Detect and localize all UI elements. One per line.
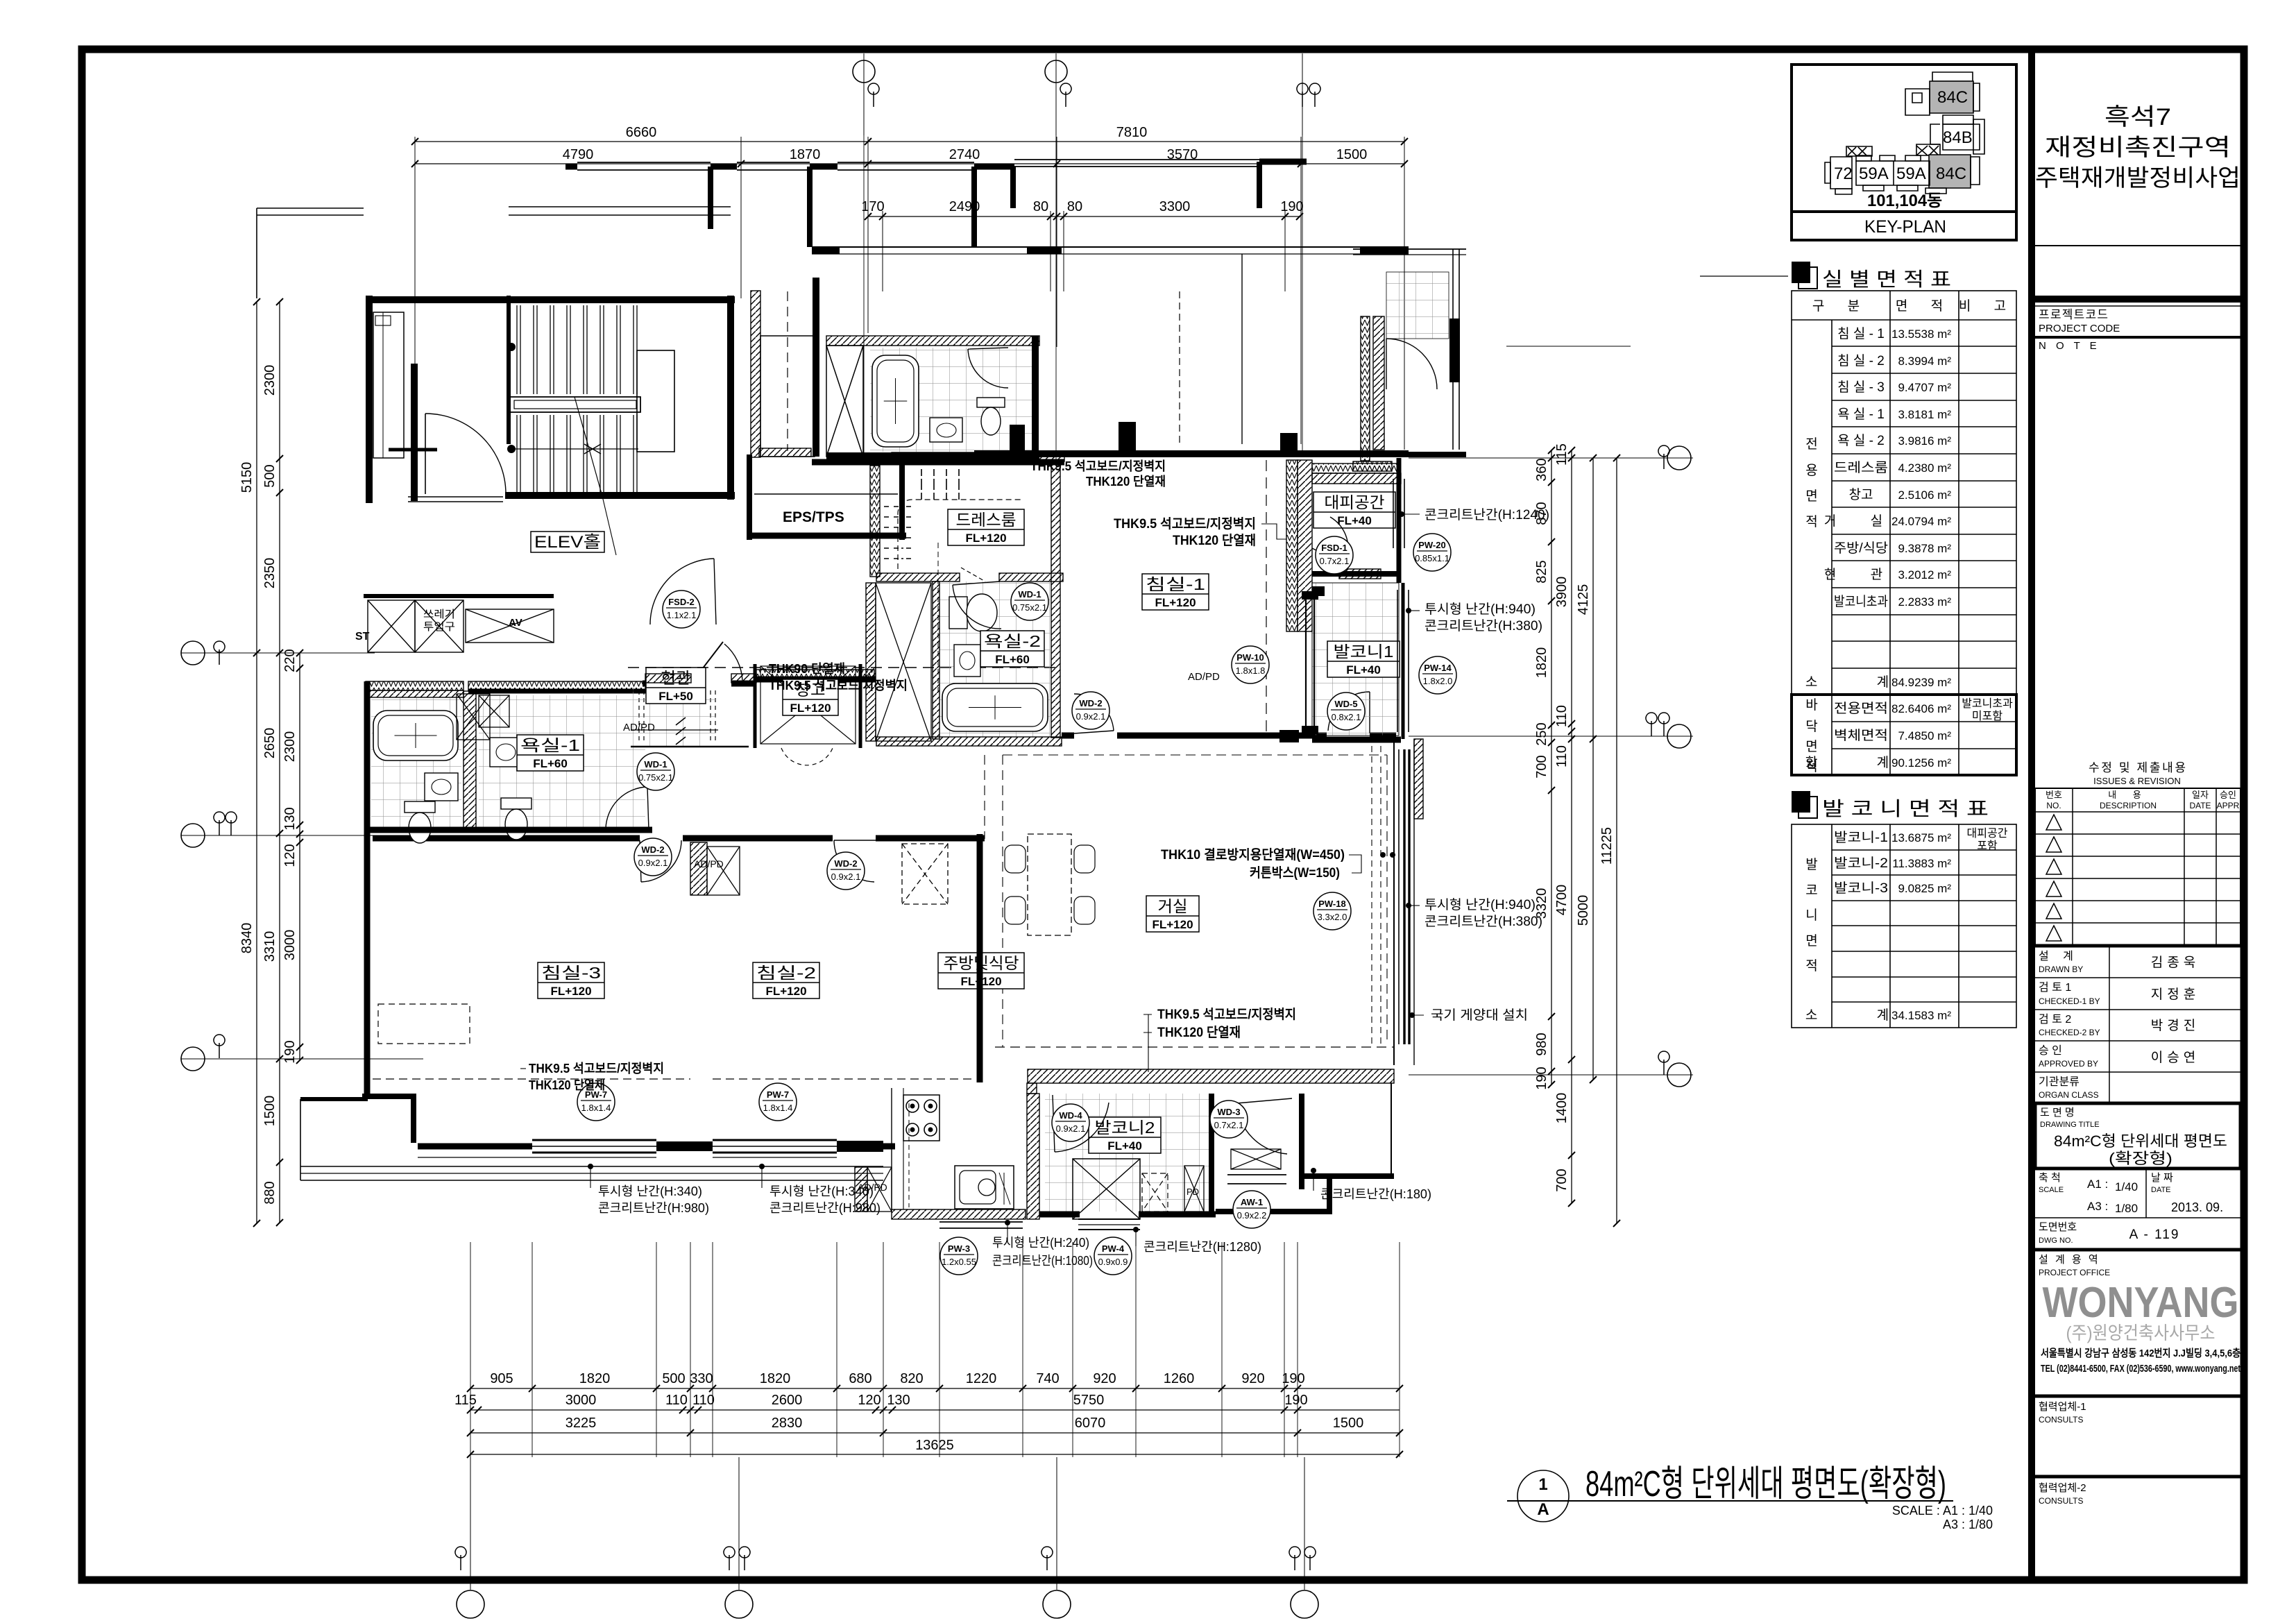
svg-text:협력업체-2: 협력업체-2	[2039, 1482, 2086, 1494]
svg-text:9.4707 m²: 9.4707 m²	[1898, 381, 1951, 394]
svg-text:PW-20: PW-20	[1418, 540, 1445, 550]
svg-text:DRAWING TITLE: DRAWING TITLE	[2040, 1121, 2100, 1129]
svg-text:13.6875 m²: 13.6875 m²	[1891, 831, 1951, 844]
svg-text:AD/PD: AD/PD	[1188, 671, 1220, 683]
svg-text:3310: 3310	[262, 931, 278, 962]
svg-text:콘크리트난간(H:1240): 콘크리트난간(H:1240)	[1425, 507, 1549, 522]
svg-text:검 토 1: 검 토 1	[2039, 981, 2071, 994]
svg-text:3225: 3225	[566, 1416, 597, 1431]
svg-text:FL+120: FL+120	[550, 985, 591, 998]
svg-text:0.9x2.2: 0.9x2.2	[1237, 1210, 1267, 1221]
svg-text:FL+50: FL+50	[658, 690, 693, 703]
svg-text:발: 발	[1805, 857, 1817, 872]
svg-text:115: 115	[1554, 443, 1570, 466]
svg-text:905: 905	[490, 1371, 513, 1386]
svg-text:SCALE : A1 : 1/40: SCALE : A1 : 1/40	[1892, 1504, 1993, 1518]
svg-text:360: 360	[1534, 458, 1549, 481]
svg-text:1500: 1500	[262, 1096, 278, 1127]
svg-text:24.0794 m²: 24.0794 m²	[1891, 515, 1951, 528]
svg-text:4.2380 m²: 4.2380 m²	[1898, 461, 1951, 475]
svg-text:콘크리트난간(H:980): 콘크리트난간(H:980)	[769, 1201, 881, 1215]
svg-text:투입구: 투입구	[423, 621, 455, 633]
svg-text:A - 119: A - 119	[2129, 1227, 2180, 1242]
svg-text:PROJECT OFFICE: PROJECT OFFICE	[2039, 1268, 2110, 1277]
svg-text:8.3994 m²: 8.3994 m²	[1898, 355, 1951, 368]
svg-text:WD-2: WD-2	[834, 858, 857, 869]
svg-text:2.2833 m²: 2.2833 m²	[1898, 595, 1951, 609]
svg-text:DESCRIPTION: DESCRIPTION	[2100, 801, 2157, 810]
svg-text:59A: 59A	[1896, 164, 1926, 183]
svg-text:FL+60: FL+60	[533, 757, 568, 770]
svg-text:120: 120	[858, 1393, 881, 1408]
svg-text:THK9.5 석고보드/지정벽지: THK9.5 석고보드/지정벽지	[769, 679, 908, 692]
svg-text:3900: 3900	[1554, 577, 1570, 608]
svg-text:7810: 7810	[1116, 125, 1148, 140]
svg-text:검 토 2: 검 토 2	[2039, 1013, 2071, 1026]
svg-text:WONYANG: WONYANG	[2043, 1279, 2239, 1327]
svg-text:CHECKED-2 BY: CHECKED-2 BY	[2039, 1028, 2100, 1037]
svg-text:9.3878 m²: 9.3878 m²	[1898, 542, 1951, 555]
svg-text:500: 500	[662, 1371, 685, 1386]
svg-text:AV: AV	[509, 617, 522, 629]
svg-text:PD: PD	[1187, 1187, 1199, 1197]
svg-text:2350: 2350	[262, 558, 278, 589]
svg-text:WD-4: WD-4	[1059, 1110, 1082, 1121]
svg-text:실 별 면 적 표: 실 별 면 적 표	[1822, 269, 1951, 290]
svg-text:0.85x1.1: 0.85x1.1	[1415, 553, 1449, 563]
svg-text:승인: 승인	[2220, 790, 2236, 800]
svg-text:번호: 번호	[2046, 790, 2062, 800]
svg-text:AD/PD: AD/PD	[623, 722, 655, 733]
svg-text:발 코 니 면 적 표: 발 코 니 면 적 표	[1822, 798, 1989, 819]
svg-text:FL+120: FL+120	[1152, 918, 1193, 931]
svg-text:72: 72	[1834, 164, 1853, 183]
svg-text:전: 전	[1805, 436, 1817, 452]
svg-text:2600: 2600	[772, 1393, 803, 1408]
svg-text:0.7x2.1: 0.7x2.1	[1214, 1120, 1244, 1130]
svg-text:80: 80	[1033, 199, 1048, 214]
svg-text:A3 :: A3 :	[2087, 1200, 2108, 1213]
svg-text:PW-3: PW-3	[948, 1243, 970, 1254]
svg-text:전용면적: 전용면적	[1834, 701, 1888, 716]
svg-text:330: 330	[690, 1371, 713, 1386]
svg-text:협력업체-1: 협력업체-1	[2039, 1401, 2086, 1413]
svg-text:PW-14: PW-14	[1424, 663, 1452, 673]
svg-text:현 관: 현 관	[1824, 567, 1898, 582]
svg-text:CONSULTS: CONSULTS	[2039, 1415, 2083, 1425]
svg-text:면: 면	[1805, 933, 1817, 949]
svg-text:1220: 1220	[966, 1371, 997, 1386]
svg-text:84C: 84C	[1936, 164, 1966, 183]
svg-text:84m²C형 단위세대 평면도: 84m²C형 단위세대 평면도	[2054, 1132, 2227, 1150]
svg-text:1.8x1.4: 1.8x1.4	[763, 1103, 793, 1113]
svg-text:TEL (02)8441-6500, FAX (02)536: TEL (02)8441-6500, FAX (02)536-6590, www…	[2041, 1363, 2240, 1375]
svg-text:코: 코	[1805, 883, 1817, 898]
svg-text:190: 190	[1284, 1393, 1307, 1408]
svg-text:3000: 3000	[282, 930, 298, 961]
svg-text:재정비촉진구역: 재정비촉진구역	[2045, 135, 2231, 161]
svg-text:2830: 2830	[772, 1416, 803, 1431]
svg-text:980: 980	[1534, 1033, 1549, 1055]
svg-text:0.75x2.1: 0.75x2.1	[1012, 602, 1047, 613]
svg-text:쓰레기: 쓰레기	[423, 609, 455, 620]
svg-text:34.1583 m²: 34.1583 m²	[1891, 1009, 1951, 1022]
svg-text:욕 실 - 2: 욕 실 - 2	[1837, 433, 1885, 448]
svg-text:1.8x1.8: 1.8x1.8	[1236, 665, 1266, 676]
svg-text:130: 130	[887, 1393, 910, 1408]
svg-text:190: 190	[282, 1040, 298, 1063]
svg-text:발코니초과: 발코니초과	[1834, 594, 1888, 609]
svg-text:CONSULTS: CONSULTS	[2039, 1496, 2083, 1506]
svg-text:거실: 거실	[1158, 897, 1188, 915]
svg-text:WD-2: WD-2	[641, 844, 664, 855]
svg-text:1: 1	[1538, 1475, 1547, 1494]
svg-text:흑석7: 흑석7	[2104, 104, 2171, 130]
svg-text:수정 및 제출내용: 수정 및 제출내용	[2089, 761, 2186, 774]
svg-text:미포함: 미포함	[1972, 710, 2002, 722]
svg-text:820: 820	[900, 1371, 923, 1386]
svg-text:기관분류: 기관분류	[2039, 1076, 2080, 1088]
svg-text:WD-1: WD-1	[644, 759, 667, 770]
svg-text:110: 110	[1554, 745, 1570, 767]
svg-text:용: 용	[1805, 464, 1817, 478]
svg-text:발코니2: 발코니2	[1095, 1119, 1155, 1137]
svg-text:1400: 1400	[1554, 1093, 1570, 1124]
svg-text:7.4850 m²: 7.4850 m²	[1898, 729, 1951, 742]
svg-text:FL+40: FL+40	[1337, 514, 1372, 527]
svg-text:11225: 11225	[1599, 827, 1615, 865]
svg-text:A: A	[1537, 1500, 1549, 1519]
svg-text:(주)원양건축사사무소: (주)원양건축사사무소	[2066, 1323, 2216, 1343]
svg-text:1500: 1500	[1333, 1416, 1364, 1431]
svg-text:5750: 5750	[1073, 1393, 1105, 1408]
svg-text:FL+120: FL+120	[1155, 596, 1196, 609]
svg-text:AW-1: AW-1	[1241, 1197, 1263, 1207]
svg-text:욕 실 - 1: 욕 실 - 1	[1837, 407, 1885, 422]
svg-text:PW-10: PW-10	[1236, 652, 1264, 663]
svg-text:도면번호: 도면번호	[2039, 1221, 2077, 1233]
svg-text:82.6406 m²: 82.6406 m²	[1891, 702, 1951, 715]
svg-text:3.3x2.0: 3.3x2.0	[1318, 912, 1347, 922]
svg-text:DATE: DATE	[2151, 1186, 2171, 1194]
svg-text:6660: 6660	[626, 125, 657, 140]
svg-text:8340: 8340	[239, 923, 255, 954]
svg-text:6070: 6070	[1075, 1416, 1106, 1431]
svg-text:CHECKED-1 BY: CHECKED-1 BY	[2039, 996, 2100, 1006]
svg-text:0.9x2.1: 0.9x2.1	[1076, 711, 1106, 722]
svg-text:DRAWN BY: DRAWN BY	[2039, 965, 2083, 974]
svg-text:일자: 일자	[2192, 790, 2209, 800]
svg-text:1260: 1260	[1164, 1371, 1195, 1386]
svg-text:700: 700	[1534, 755, 1549, 778]
svg-text:포함: 포함	[1977, 840, 1998, 852]
svg-text:서울특별시 강남구 삼성동 142번지 J.J빌딩 3,4: 서울특별시 강남구 삼성동 142번지 J.J빌딩 3,4,5,6층	[2041, 1347, 2240, 1359]
svg-text:벽체면적: 벽체면적	[1834, 728, 1888, 743]
svg-text:FL+120: FL+120	[790, 702, 831, 715]
svg-text:발코니-1: 발코니-1	[1834, 830, 1888, 845]
svg-text:발코니-3: 발코니-3	[1834, 881, 1888, 896]
svg-text:1/40: 1/40	[2115, 1180, 2138, 1193]
svg-text:설 계: 설 계	[2039, 950, 2079, 962]
svg-text:ELEV홀: ELEV홀	[534, 533, 601, 552]
svg-text:680: 680	[849, 1371, 871, 1386]
svg-text:13625: 13625	[915, 1438, 954, 1453]
svg-text:축 척: 축 척	[2039, 1172, 2061, 1184]
svg-text:도 면 명: 도 면 명	[2040, 1107, 2075, 1119]
svg-text:비 고: 비 고	[1959, 298, 2016, 314]
svg-text:THK10 결로방지용단열재(W=450): THK10 결로방지용단열재(W=450)	[1161, 847, 1345, 863]
svg-text:1820: 1820	[579, 1371, 611, 1386]
svg-text:침 실 - 3: 침 실 - 3	[1837, 380, 1885, 395]
svg-text:110: 110	[665, 1393, 688, 1408]
svg-text:110: 110	[692, 1393, 715, 1408]
svg-text:1820: 1820	[760, 1371, 791, 1386]
svg-text:110: 110	[1554, 705, 1570, 727]
svg-text:THK9.5 석고보드/지정벽지: THK9.5 석고보드/지정벽지	[529, 1062, 664, 1076]
svg-text:0.7x2.1: 0.7x2.1	[1320, 556, 1350, 566]
svg-text:190: 190	[1534, 1067, 1549, 1089]
svg-text:1820: 1820	[1534, 647, 1549, 679]
svg-text:김종욱: 김종욱	[2151, 955, 2200, 970]
svg-text:2740: 2740	[949, 147, 980, 162]
svg-text:FL+40: FL+40	[1107, 1139, 1142, 1153]
svg-text:콘크리트난간(H:1080): 콘크리트난간(H:1080)	[992, 1254, 1093, 1268]
svg-text:발코니1: 발코니1	[1334, 643, 1394, 661]
svg-text:닥: 닥	[1805, 719, 1817, 734]
svg-text:0.8x2.1: 0.8x2.1	[1332, 712, 1361, 722]
svg-text:3.2012 m²: 3.2012 m²	[1898, 568, 1951, 581]
svg-text:190: 190	[1280, 199, 1303, 214]
svg-text:3.8181 m²: 3.8181 m²	[1898, 408, 1951, 421]
svg-text:FSD-2: FSD-2	[668, 597, 695, 607]
svg-text:84m²C형 단위세대 평면도(확장형): 84m²C형 단위세대 평면도(확장형)	[1585, 1464, 1946, 1504]
svg-text:84.9239 m²: 84.9239 m²	[1891, 676, 1951, 689]
svg-text:NO.: NO.	[2046, 801, 2061, 810]
svg-text:투시형 난간(H:940): 투시형 난간(H:940)	[1425, 602, 1536, 617]
svg-text:3300: 3300	[1159, 199, 1191, 214]
svg-text:1870: 1870	[790, 147, 821, 162]
svg-text:220: 220	[282, 649, 298, 672]
svg-text:발코니초과: 발코니초과	[1962, 697, 2013, 710]
svg-text:국기 게양대 설치: 국기 게양대 설치	[1431, 1008, 1528, 1023]
svg-text:거 실: 거 실	[1824, 513, 1898, 529]
svg-text:920: 920	[1093, 1371, 1116, 1386]
svg-text:59A: 59A	[1859, 164, 1889, 183]
svg-text:FL+40: FL+40	[1346, 663, 1381, 677]
svg-text:0.9x2.1: 0.9x2.1	[1056, 1123, 1086, 1134]
svg-text:2013. 09.: 2013. 09.	[2171, 1200, 2223, 1214]
svg-text:AD/PD: AD/PD	[694, 858, 724, 869]
svg-text:주택재개발정비사업: 주택재개발정비사업	[2035, 165, 2240, 192]
svg-text:WD-5: WD-5	[1334, 699, 1357, 709]
svg-text:승 인: 승 인	[2039, 1044, 2062, 1057]
svg-text:500: 500	[262, 464, 278, 487]
svg-text:THK9.5 석고보드/지정벽지: THK9.5 석고보드/지정벽지	[1114, 516, 1256, 532]
svg-text:84C: 84C	[1937, 88, 1968, 107]
svg-text:1.8x2.0: 1.8x2.0	[1423, 676, 1453, 686]
svg-text:740: 740	[1036, 1371, 1059, 1386]
svg-text:EPS/TPS: EPS/TPS	[783, 509, 844, 525]
svg-text:80: 80	[1067, 199, 1082, 214]
svg-text:0.75x2.1: 0.75x2.1	[638, 772, 673, 783]
svg-text:A3 : 1/80: A3 : 1/80	[1943, 1518, 1993, 1531]
svg-text:침실-3: 침실-3	[541, 964, 601, 982]
svg-text:5000: 5000	[1576, 895, 1591, 926]
svg-text:2650: 2650	[262, 728, 278, 759]
svg-text:1500: 1500	[1336, 147, 1368, 162]
svg-text:250: 250	[1534, 722, 1549, 745]
svg-text:투시형 난간(H:340): 투시형 난간(H:340)	[769, 1184, 874, 1198]
svg-text:DWG NO.: DWG NO.	[2039, 1237, 2073, 1245]
svg-text:THK120 단열재: THK120 단열재	[529, 1078, 605, 1092]
svg-text:920: 920	[1241, 1371, 1264, 1386]
svg-text:침실-1: 침실-1	[1146, 575, 1205, 593]
svg-text:9.0825 m²: 9.0825 m²	[1898, 882, 1951, 895]
svg-text:THK120 단열재: THK120 단열재	[1086, 475, 1166, 488]
svg-text:주방/식당: 주방/식당	[1834, 541, 1888, 556]
svg-text:4125: 4125	[1576, 584, 1591, 615]
svg-text:적: 적	[1805, 514, 1817, 529]
svg-text:면 적: 면 적	[1896, 298, 1953, 314]
svg-text:DATE: DATE	[2189, 801, 2211, 810]
svg-text:5150: 5150	[239, 462, 255, 493]
svg-text:설 계 용 역: 설 계 용 역	[2039, 1254, 2100, 1266]
svg-text:욕실-2: 욕실-2	[984, 632, 1041, 650]
svg-text:투시형 난간(H:240): 투시형 난간(H:240)	[992, 1236, 1089, 1250]
svg-text:침실-2: 침실-2	[756, 964, 816, 982]
svg-text:ST: ST	[355, 631, 370, 643]
svg-text:FL+120: FL+120	[765, 985, 806, 998]
svg-text:날 짜: 날 짜	[2151, 1172, 2173, 1184]
svg-text:프로젝트코드: 프로젝트코드	[2039, 308, 2108, 321]
svg-text:0.9x0.9: 0.9x0.9	[1098, 1257, 1128, 1267]
svg-text:11.3883 m²: 11.3883 m²	[1892, 857, 1951, 870]
svg-text:3000: 3000	[566, 1393, 597, 1408]
svg-text:콘크리트난간(H:980): 콘크리트난간(H:980)	[598, 1201, 709, 1215]
svg-text:2300: 2300	[262, 365, 278, 396]
svg-text:700: 700	[1554, 1169, 1570, 1191]
svg-text:FL+120: FL+120	[965, 532, 1006, 545]
svg-text:구 분: 구 분	[1812, 299, 1869, 314]
svg-text:115: 115	[454, 1393, 477, 1408]
svg-text:ISSUES & REVISION: ISSUES & REVISION	[2093, 776, 2181, 786]
svg-text:WD-1: WD-1	[1018, 589, 1041, 600]
svg-text:THK120 단열재: THK120 단열재	[1173, 533, 1256, 548]
svg-text:130: 130	[282, 807, 298, 830]
svg-text:3.9816 m²: 3.9816 m²	[1898, 434, 1951, 448]
svg-text:커튼박스(W=150): 커튼박스(W=150)	[1250, 865, 1340, 881]
svg-text:4700: 4700	[1554, 885, 1570, 916]
svg-text:A1 :: A1 :	[2087, 1178, 2108, 1191]
svg-text:니: 니	[1805, 908, 1817, 923]
svg-text:지정훈: 지정훈	[2151, 987, 2200, 1002]
svg-text:2300: 2300	[282, 731, 298, 763]
svg-text:콘크리트난간(H:1280): 콘크리트난간(H:1280)	[1143, 1240, 1261, 1254]
svg-text:120: 120	[282, 844, 298, 867]
svg-text:투시형 난간(H:940): 투시형 난간(H:940)	[1425, 897, 1536, 912]
svg-text:대피공간: 대피공간	[1967, 827, 2008, 840]
svg-text:SCALE: SCALE	[2039, 1186, 2064, 1194]
svg-text:13.5538 m²: 13.5538 m²	[1891, 328, 1951, 341]
svg-text:이승연: 이승연	[2151, 1050, 2200, 1065]
svg-text:THK9.5 석고보드/지정벽지: THK9.5 석고보드/지정벽지	[1157, 1007, 1296, 1022]
svg-text:FL+60: FL+60	[995, 653, 1030, 666]
svg-text:PROJECT CODE: PROJECT CODE	[2039, 323, 2120, 334]
svg-text:170: 170	[861, 199, 884, 214]
svg-text:콘크리트난간(H:380): 콘크리트난간(H:380)	[1425, 914, 1542, 929]
svg-text:THK120 단열재: THK120 단열재	[1157, 1025, 1241, 1040]
svg-text:0.9x2.1: 0.9x2.1	[831, 872, 861, 882]
svg-text:1/80: 1/80	[2115, 1202, 2138, 1215]
svg-text:0.9x2.1: 0.9x2.1	[638, 858, 668, 868]
svg-text:APPROVED BY: APPROVED BY	[2039, 1059, 2098, 1069]
svg-text:PW-7: PW-7	[767, 1089, 789, 1100]
svg-text:(확장형): (확장형)	[2109, 1150, 2172, 1167]
svg-text:드레스룸: 드레스룸	[956, 511, 1017, 529]
svg-text:투시형 난간(H:340): 투시형 난간(H:340)	[598, 1184, 702, 1198]
svg-text:84B: 84B	[1943, 128, 1973, 147]
svg-text:면: 면	[1805, 488, 1817, 504]
svg-text:PW-4: PW-4	[1102, 1243, 1125, 1254]
svg-text:콘크리트난간(H:180): 콘크리트난간(H:180)	[1320, 1187, 1431, 1201]
svg-text:박경진: 박경진	[2151, 1018, 2200, 1033]
svg-text:콘크리트난간(H:380): 콘크리트난간(H:380)	[1425, 618, 1542, 634]
svg-text:2.5106 m²: 2.5106 m²	[1898, 488, 1951, 502]
svg-text:WD-2: WD-2	[1079, 698, 1102, 708]
svg-text:825: 825	[1534, 560, 1549, 583]
svg-text:APPR: APPR	[2217, 801, 2240, 810]
svg-text:드레스룸: 드레스룸	[1834, 460, 1888, 475]
svg-text:1.2x0.55: 1.2x0.55	[942, 1257, 976, 1267]
svg-text:101,104동: 101,104동	[1867, 192, 1942, 210]
svg-text:욕실-1: 욕실-1	[520, 736, 580, 754]
svg-text:발코니-2: 발코니-2	[1834, 856, 1888, 871]
svg-text:1.1x2.1: 1.1x2.1	[667, 610, 697, 620]
svg-text:내 용: 내 용	[2108, 790, 2148, 800]
svg-text:N O T E: N O T E	[2039, 340, 2100, 352]
svg-text:침 실 - 2: 침 실 - 2	[1837, 353, 1885, 368]
svg-text:1.8x1.4: 1.8x1.4	[581, 1103, 611, 1113]
svg-text:WD-3: WD-3	[1217, 1107, 1240, 1117]
svg-text:880: 880	[262, 1181, 278, 1204]
svg-text:대피공간: 대피공간	[1325, 493, 1385, 511]
svg-text:190: 190	[1282, 1371, 1304, 1386]
svg-text:바: 바	[1805, 697, 1817, 713]
svg-text:면: 면	[1805, 739, 1817, 754]
svg-text:4790: 4790	[563, 147, 594, 162]
svg-text:창고: 창고	[1849, 487, 1873, 502]
svg-text:KEY-PLAN: KEY-PLAN	[1864, 217, 1946, 237]
svg-text:적: 적	[1805, 958, 1817, 974]
svg-text:침 실 - 1: 침 실 - 1	[1837, 326, 1885, 341]
svg-text:PW-18: PW-18	[1318, 899, 1345, 909]
svg-text:90.1256 m²: 90.1256 m²	[1891, 756, 1951, 770]
svg-text:FSD-1: FSD-1	[1321, 543, 1347, 553]
svg-text:ORGAN CLASS: ORGAN CLASS	[2039, 1090, 2099, 1100]
